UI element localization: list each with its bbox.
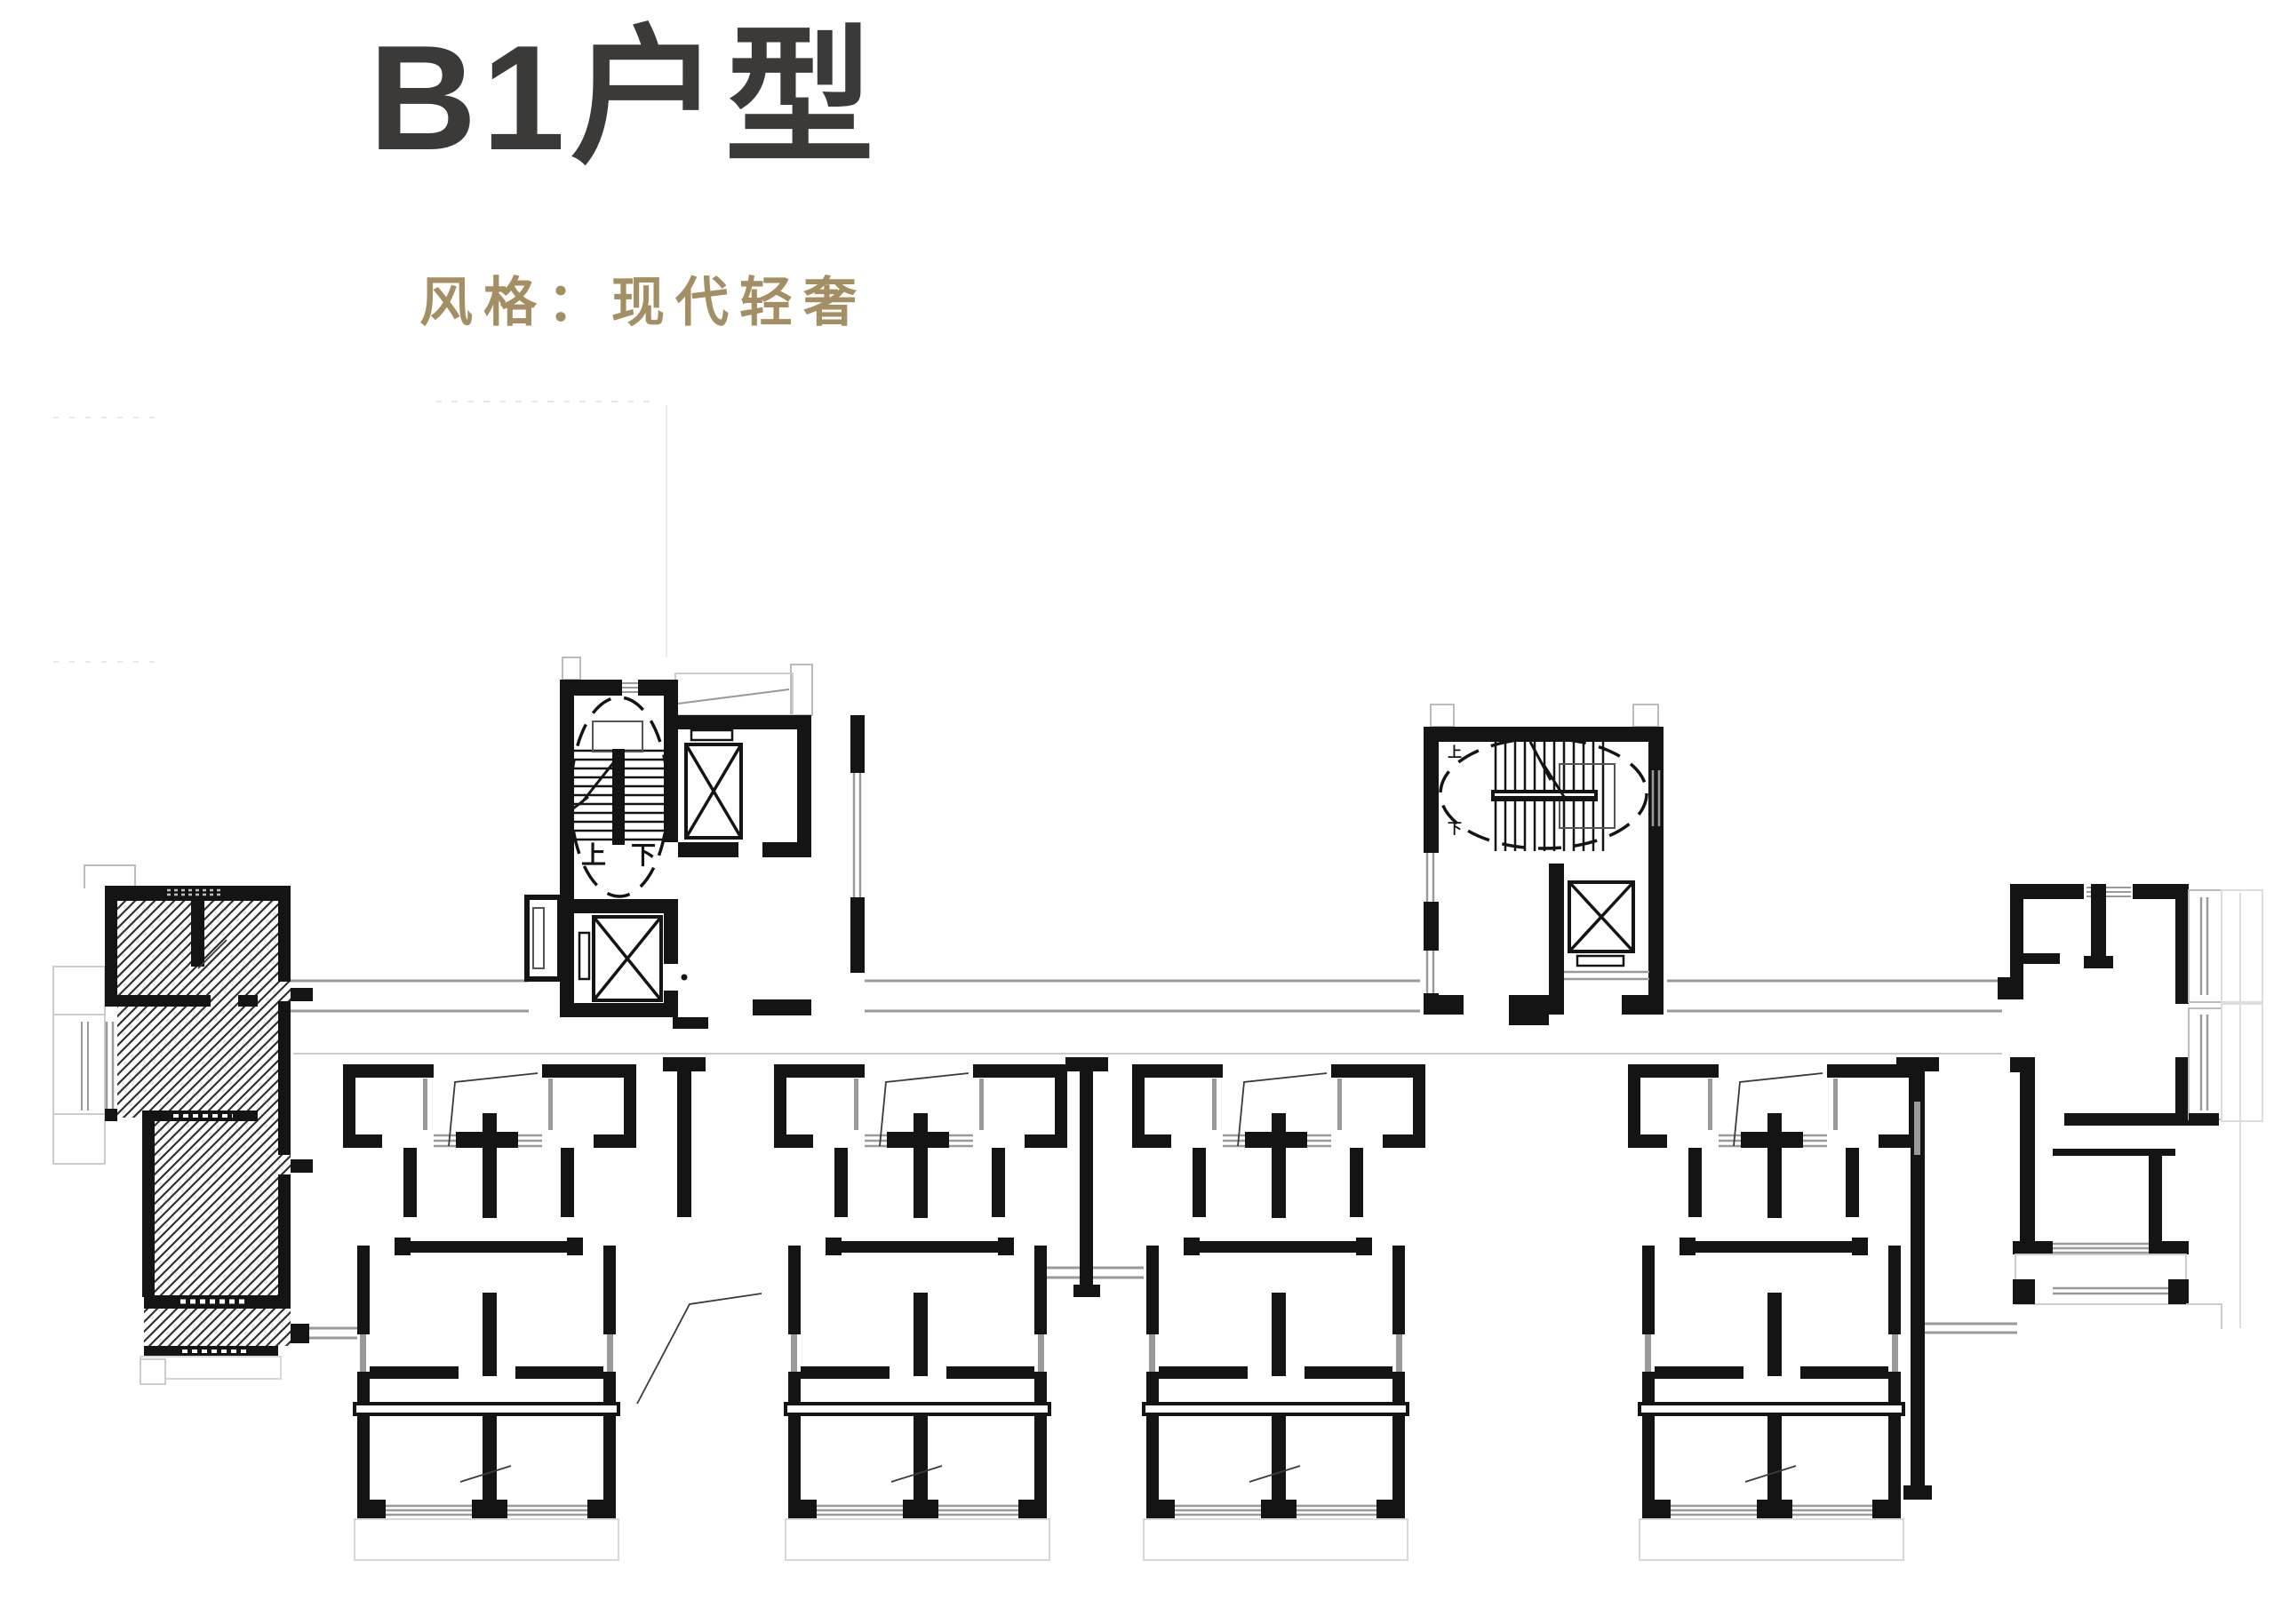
party-wall-divider-2 xyxy=(1065,1057,1108,1297)
unit-cluster-2 xyxy=(774,1064,1067,1560)
stair-up-label-left: 上 xyxy=(581,841,606,869)
elevator-icon xyxy=(1569,882,1633,951)
unit-cluster-1 xyxy=(343,1064,636,1560)
elevator-icon xyxy=(686,744,741,838)
guide-lines xyxy=(53,402,666,662)
party-wall-divider-1 xyxy=(663,1057,706,1217)
left-stair-core: 上 下 xyxy=(527,657,865,1029)
highlighted-unit-b1 xyxy=(105,886,313,1384)
stair-down-label-left: 下 xyxy=(631,841,656,869)
floor-plan-drawing: 上 下 xyxy=(0,0,2274,1624)
right-stair-core: 上 下 xyxy=(1420,705,1667,1025)
unit-cluster-3 xyxy=(1132,1064,1425,1560)
page: B1户型 风格：现代轻奢 xyxy=(0,0,2274,1624)
stair-up-label-right: 上 xyxy=(1448,744,1462,760)
elevator-icon xyxy=(594,917,661,1000)
right-exterior-bays xyxy=(2222,890,2262,1328)
unit-cluster-4 xyxy=(1628,1064,1921,1560)
stair-down-label-right: 下 xyxy=(1448,822,1462,837)
right-end-unit xyxy=(1998,884,2222,1329)
